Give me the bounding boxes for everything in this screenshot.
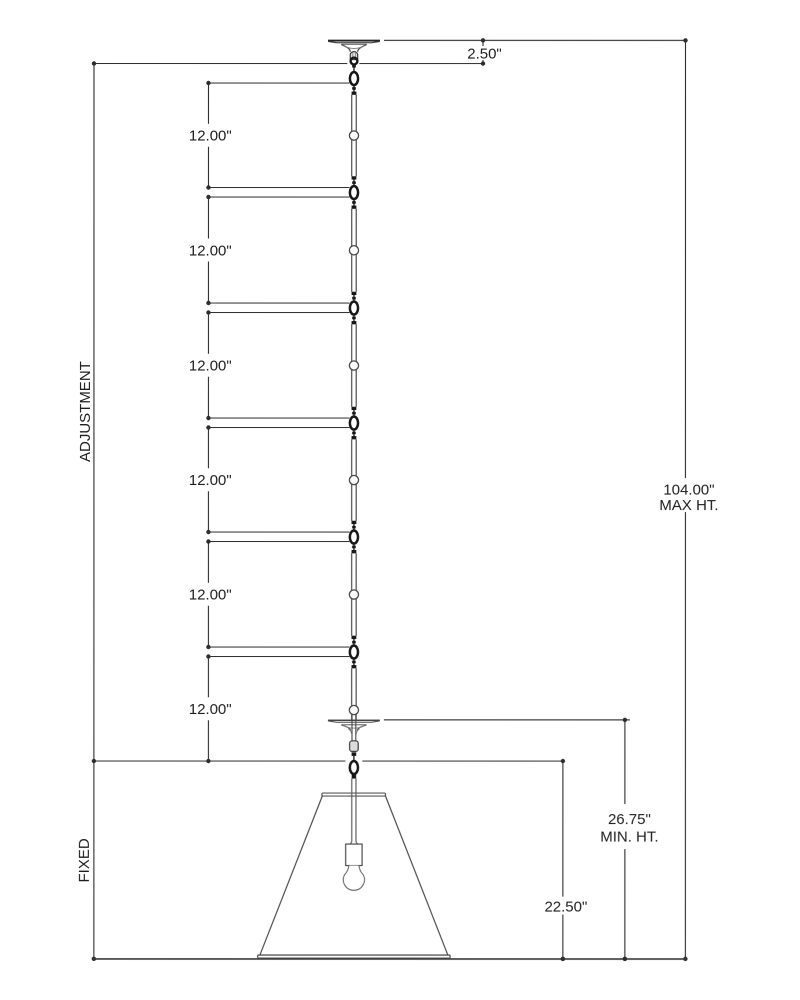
svg-text:12.00": 12.00" [189,358,232,375]
svg-text:12.00": 12.00" [189,587,232,604]
svg-text:12.00": 12.00" [189,472,232,489]
svg-text:26.75": 26.75" [608,811,651,828]
svg-text:2.50": 2.50" [467,46,502,63]
svg-text:12.00": 12.00" [189,701,232,718]
svg-text:12.00": 12.00" [189,242,232,259]
svg-text:MIN. HT.: MIN. HT. [600,829,658,846]
svg-text:22.50": 22.50" [544,899,587,916]
svg-text:MAX HT.: MAX HT. [659,497,718,514]
svg-text:FIXED: FIXED [76,838,93,882]
svg-text:ADJUSTMENT: ADJUSTMENT [77,361,94,462]
svg-text:104.00": 104.00" [663,481,714,498]
svg-text:12.00": 12.00" [189,128,232,145]
